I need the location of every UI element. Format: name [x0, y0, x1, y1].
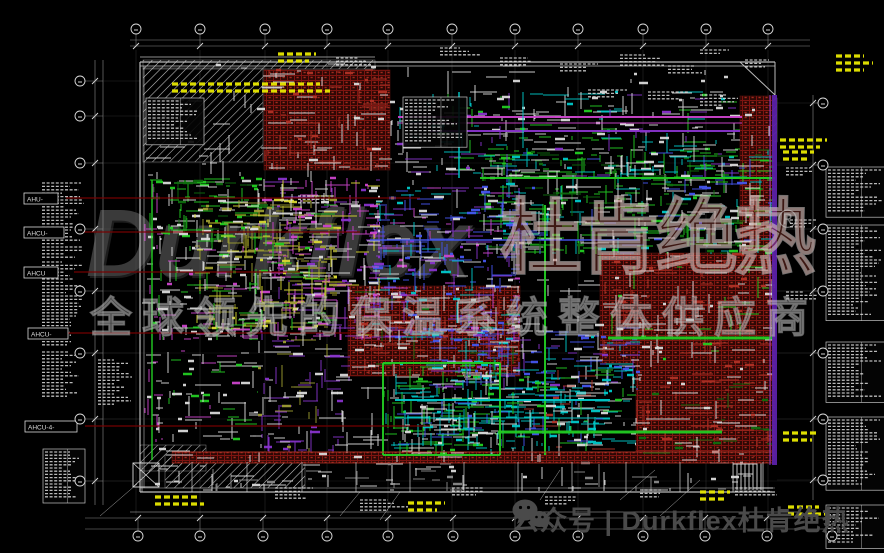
- svg-text:AHU-: AHU-: [27, 197, 43, 204]
- svg-text:AHCU-: AHCU-: [31, 332, 52, 339]
- svg-text:AHCU: AHCU: [27, 271, 46, 278]
- cad-screenshot: Durkflex AHU-AHCU-AHCUAHCU-AHCU-4- 杜肯绝热 …: [0, 0, 884, 553]
- svg-text:AHCU-4-: AHCU-4-: [28, 425, 54, 432]
- cad-plan-svg: AHU-AHCU-AHCUAHCU-AHCU-4-: [0, 0, 884, 553]
- svg-text:AHCU-: AHCU-: [27, 231, 48, 238]
